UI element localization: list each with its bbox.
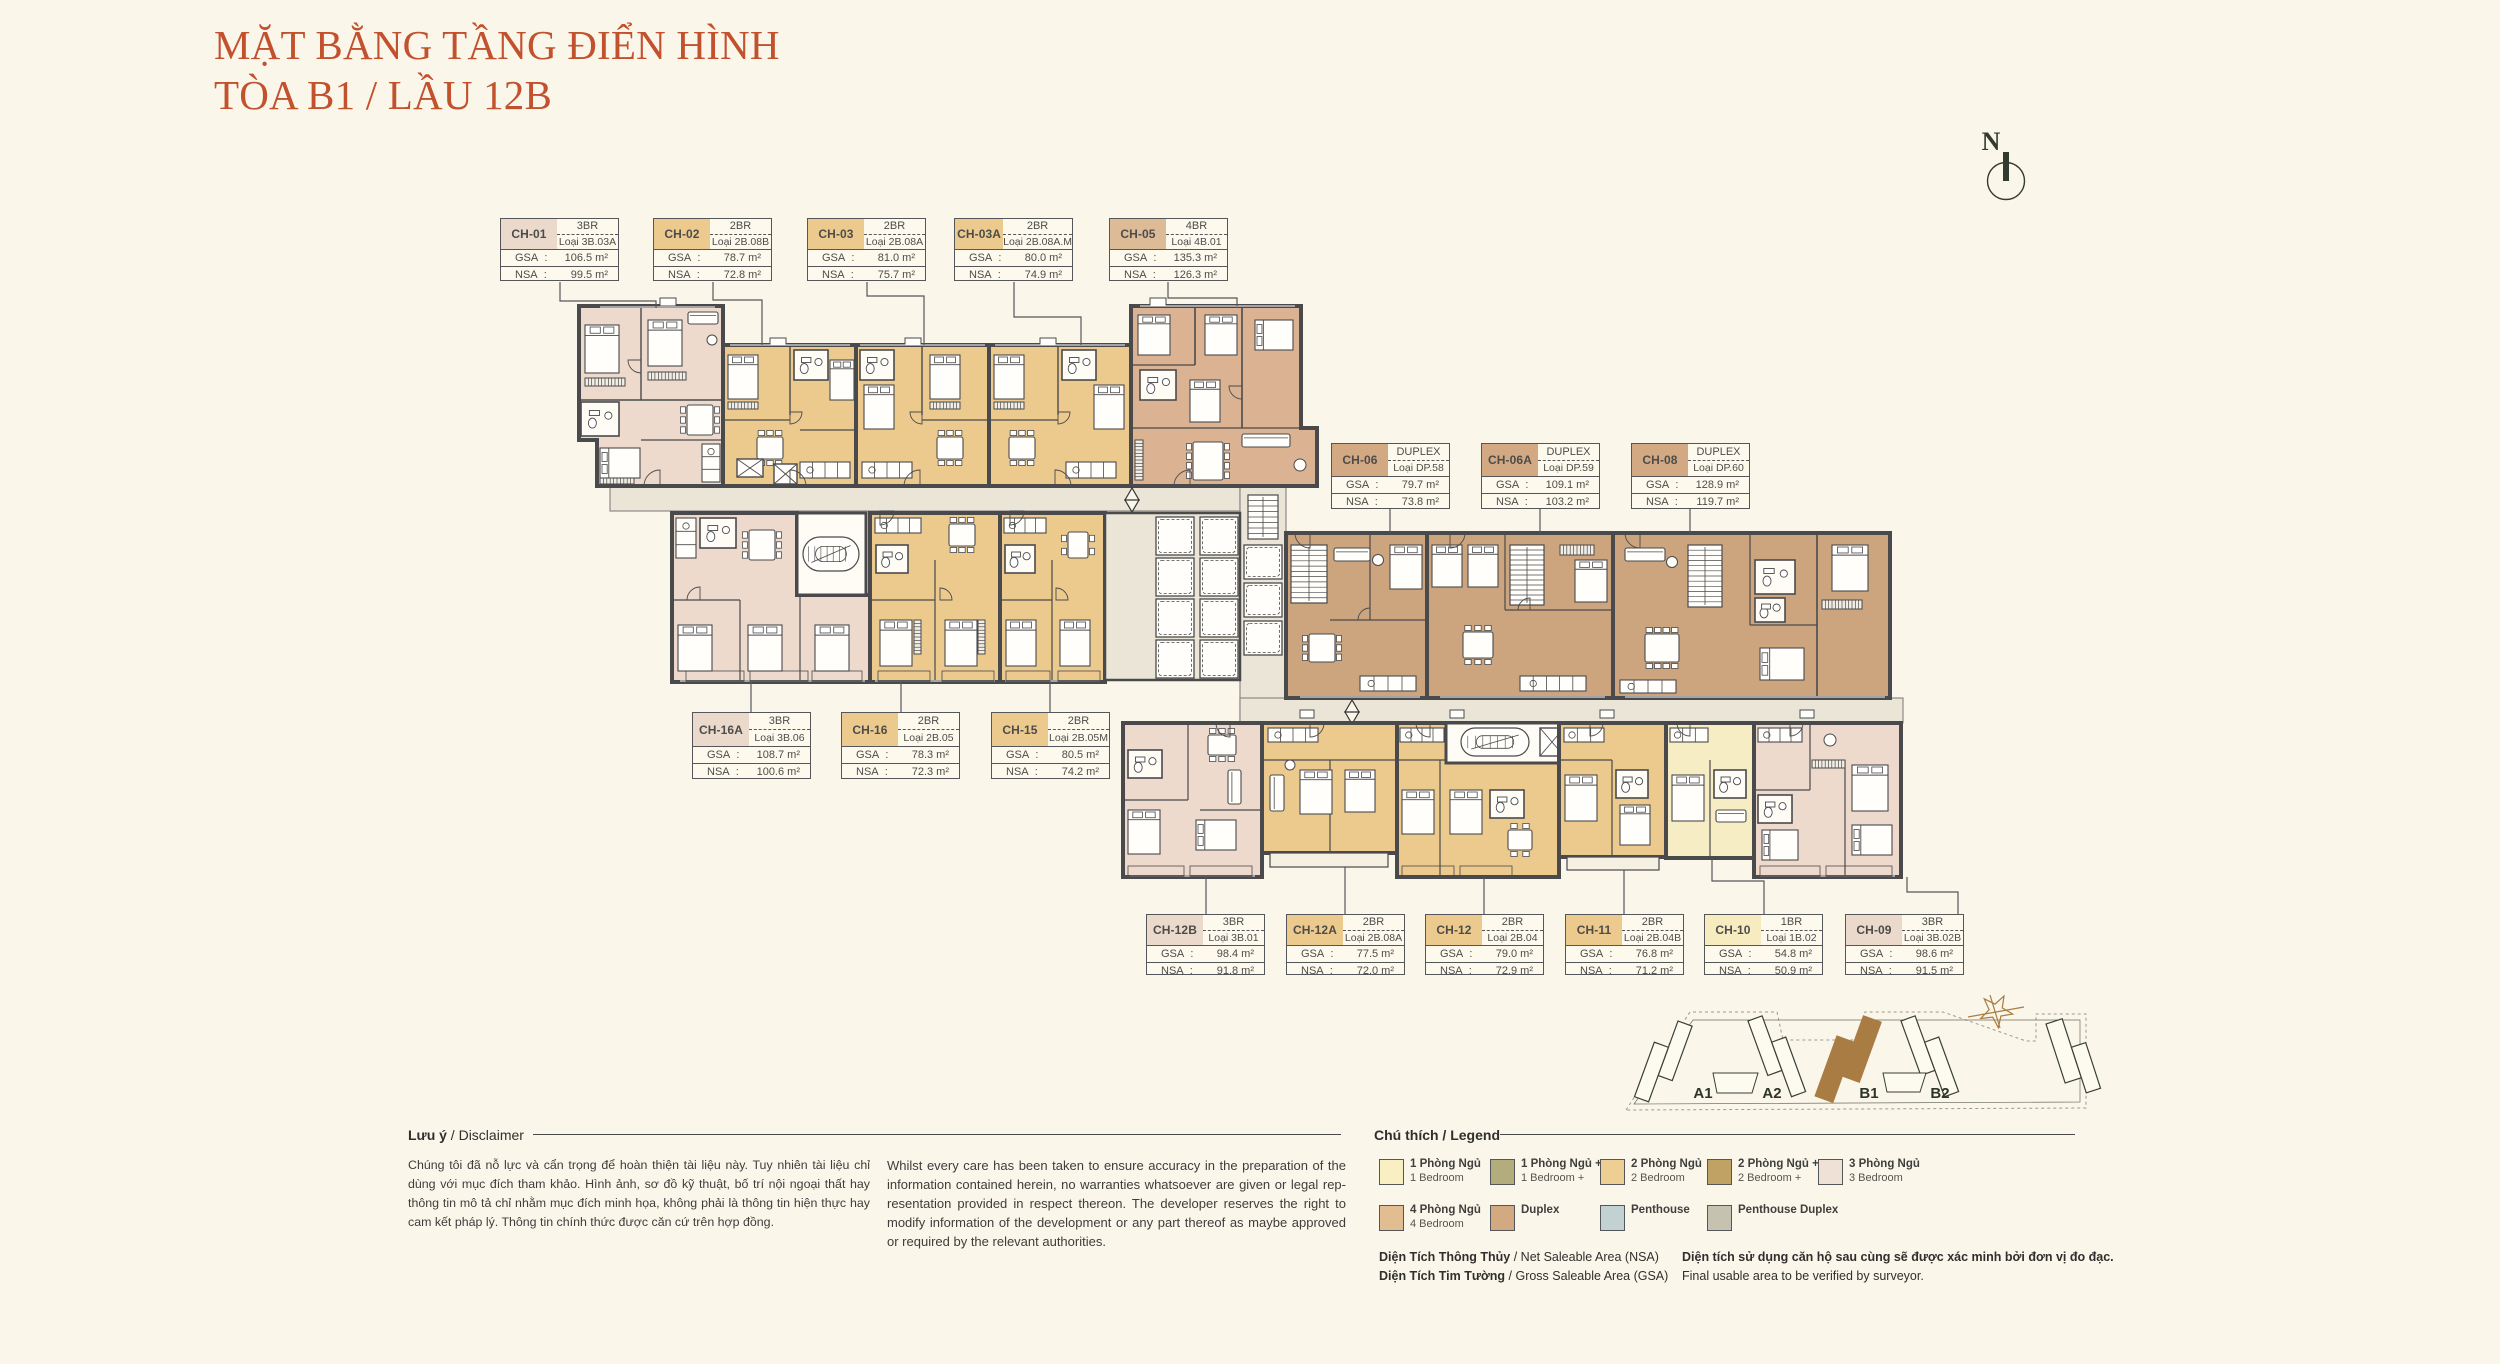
svg-text:A2: A2 xyxy=(1762,1085,1781,1102)
svg-text:A1: A1 xyxy=(1693,1085,1712,1102)
svg-text:B1: B1 xyxy=(1859,1085,1878,1102)
svg-text:B2: B2 xyxy=(1930,1085,1949,1102)
svg-text:N: N xyxy=(1982,127,2001,156)
